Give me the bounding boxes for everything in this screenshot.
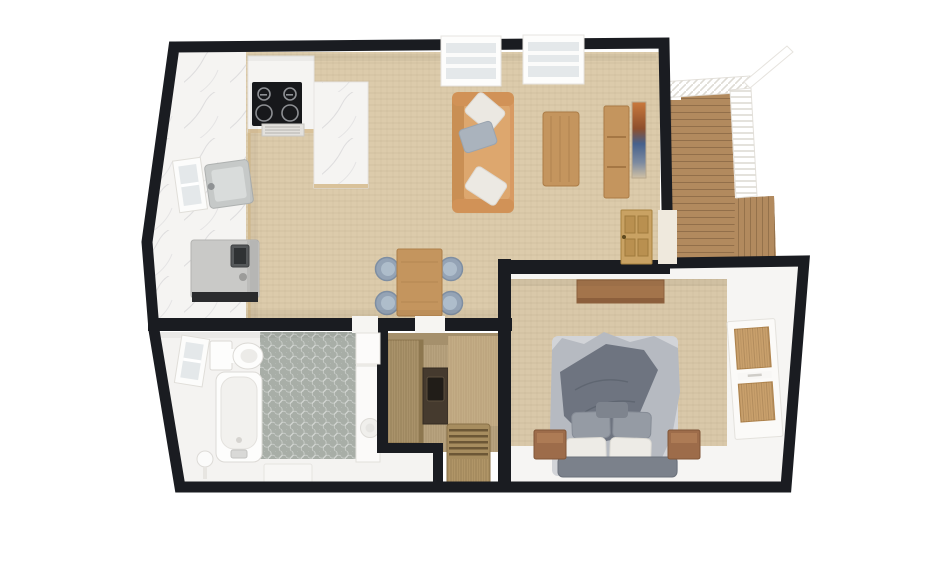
basket-slat (449, 453, 488, 456)
wardrobe-panel-grain (734, 327, 771, 369)
wardrobe-panel-grain (738, 382, 775, 422)
coffee-table (543, 112, 579, 186)
foot-bench (558, 457, 677, 477)
closet-doorway-opening (415, 316, 445, 333)
closet-side-grain (448, 336, 498, 426)
fridge-dispenser-window (234, 248, 246, 264)
bathroom-nook-floor (382, 450, 434, 486)
balcony-door-leaf (621, 210, 652, 264)
radiator-stem (203, 467, 207, 479)
pillow-accent (596, 402, 628, 418)
dining-chair (376, 258, 399, 281)
basket-slat (449, 429, 488, 432)
window-mullion (528, 62, 579, 66)
shower-tile-texture (260, 332, 356, 459)
nightstand-top (537, 433, 563, 443)
basket-front-grain (449, 459, 488, 484)
toilet-bowl-inner (241, 349, 258, 363)
deck-step-lines (734, 196, 776, 262)
window-mullion (446, 64, 496, 68)
floor-plan-canvas (0, 0, 925, 576)
fitted-wardrobe (727, 318, 783, 439)
nightstand-top (671, 433, 697, 443)
appliance-door (427, 377, 444, 401)
sink-bowl-inner (366, 424, 375, 433)
console-shelf-line (607, 166, 626, 168)
door-panel (625, 216, 635, 233)
basket-slat (449, 441, 488, 444)
refrigerator (191, 240, 259, 302)
interior-wall-south-of-living (148, 318, 512, 331)
deck-railing-post (744, 46, 793, 88)
media-console (604, 106, 629, 198)
laundry-basket (447, 424, 490, 486)
sofa (452, 91, 514, 213)
tub-faucet (231, 450, 247, 458)
bathroom-doorway-opening (352, 316, 378, 333)
deck (660, 46, 793, 263)
dining-chair (440, 258, 463, 281)
living-window-2 (523, 35, 584, 84)
peninsula-texture (314, 82, 368, 188)
wardrobe-grain (385, 340, 423, 443)
vanity-cabinet (356, 366, 380, 462)
radiator-head (197, 451, 213, 467)
sofa-back (452, 100, 464, 204)
door-handle (622, 235, 626, 239)
living-window-1 (441, 36, 501, 86)
kitchen-sink (204, 159, 254, 209)
window-mullion (446, 53, 496, 57)
wardrobe-edge (419, 340, 423, 443)
basket-slat (449, 447, 488, 450)
bathtub (216, 372, 262, 462)
sink-inner (211, 166, 247, 202)
bathroom-door-leaf (356, 333, 380, 364)
fridge-badge (239, 273, 247, 281)
balcony-doorway-opening (658, 210, 677, 264)
nightstand-right (668, 430, 700, 459)
basket-slat (449, 435, 488, 438)
fridge-base (192, 292, 258, 302)
sofa-arm (452, 199, 514, 213)
shelf-front (577, 298, 664, 303)
door-panel (638, 216, 648, 233)
vanity-sink (356, 366, 380, 462)
bedroom-west-wall (498, 259, 511, 488)
double-bed (550, 332, 680, 477)
tub-drain (236, 437, 242, 443)
wall-art (632, 102, 646, 178)
door-panel (625, 239, 635, 256)
console-top (604, 106, 629, 198)
console-shelf-line (607, 136, 626, 138)
burner-mark (260, 94, 267, 96)
nightstand-left (534, 430, 566, 459)
door-panel (638, 239, 648, 256)
burner-mark (286, 94, 293, 96)
window-mullion (528, 51, 579, 55)
peninsula-edge (314, 184, 368, 188)
coffee-table-top (543, 112, 579, 186)
floor-plan (0, 0, 925, 576)
closet-partition-stub (433, 443, 443, 488)
